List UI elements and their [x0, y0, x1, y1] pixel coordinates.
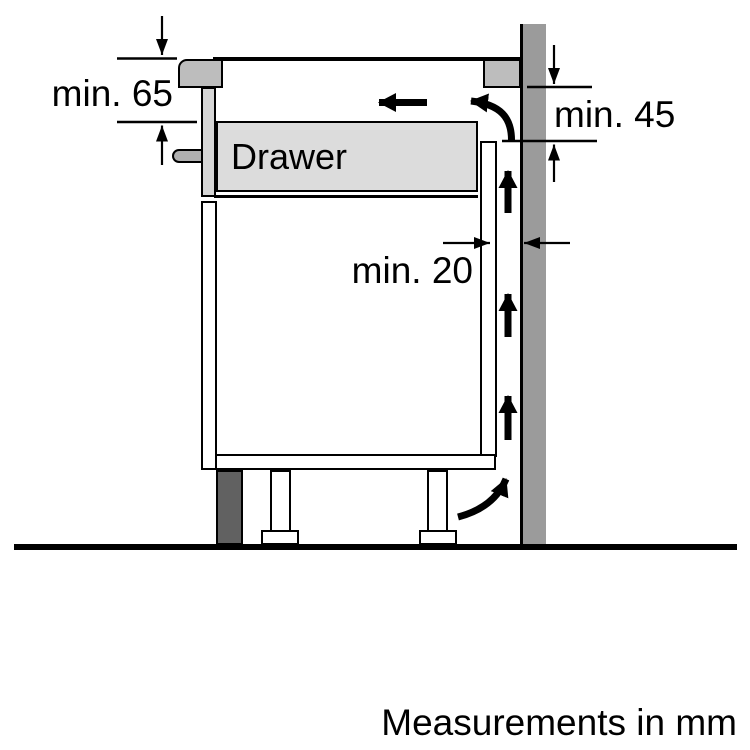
- hob-installation-diagram: Drawer: [0, 0, 750, 750]
- units-note: Measurements in mm: [379, 704, 737, 741]
- airflow-arrows: [379, 101, 512, 517]
- dim-label-45: min. 45: [554, 96, 675, 133]
- dim-label-20: min. 20: [340, 252, 473, 289]
- airflow-arrow-curve-top: [471, 101, 512, 140]
- dim-label-65: min. 65: [40, 75, 173, 112]
- airflow-arrow-curve-bottom: [458, 479, 506, 517]
